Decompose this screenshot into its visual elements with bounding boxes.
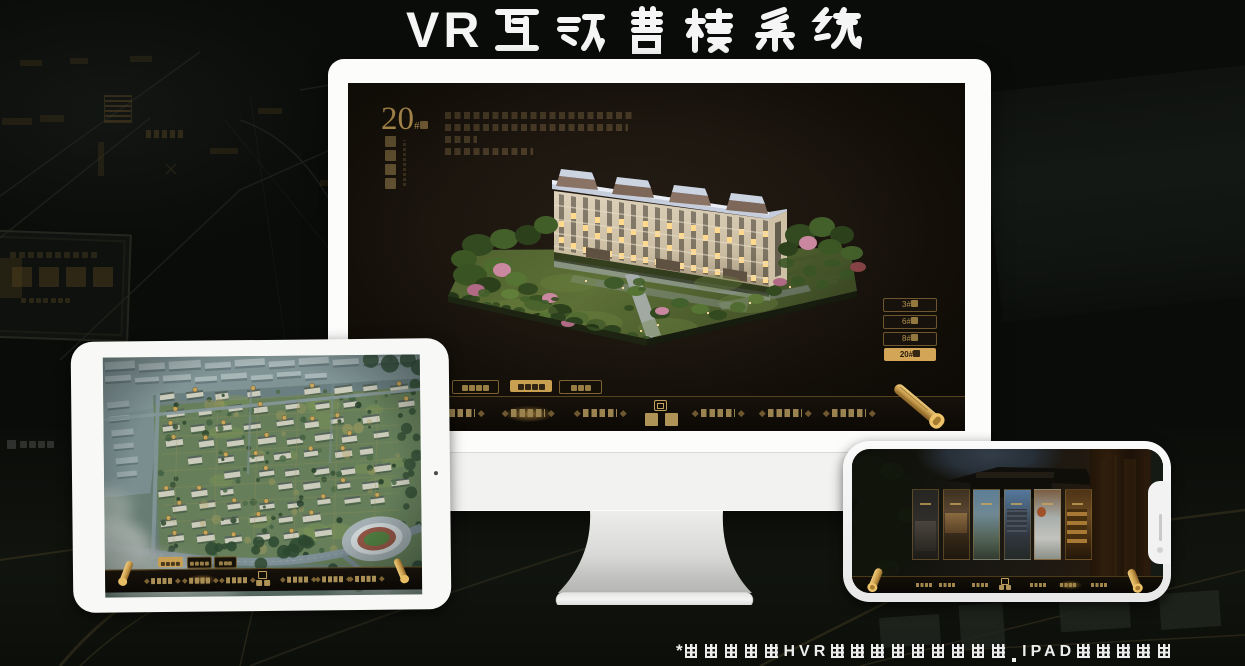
svg-text:VR: VR <box>406 3 483 57</box>
